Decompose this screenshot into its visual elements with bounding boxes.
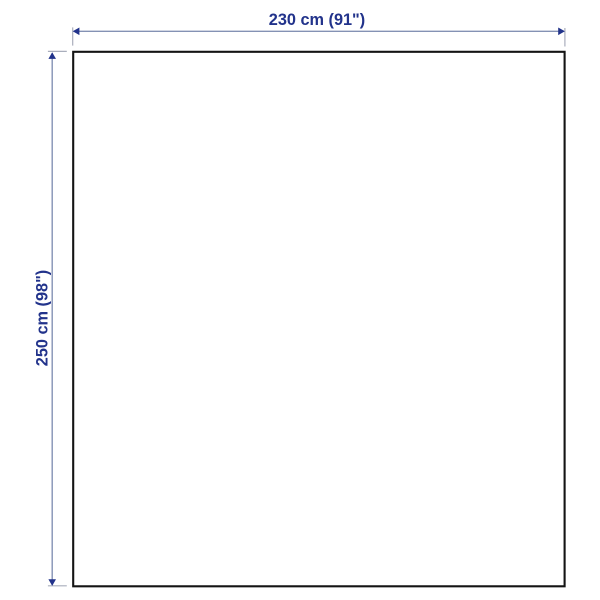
svg-text:230 cm (91"): 230 cm (91") [269,11,365,29]
svg-text:250 cm (98"): 250 cm (98") [33,270,51,366]
